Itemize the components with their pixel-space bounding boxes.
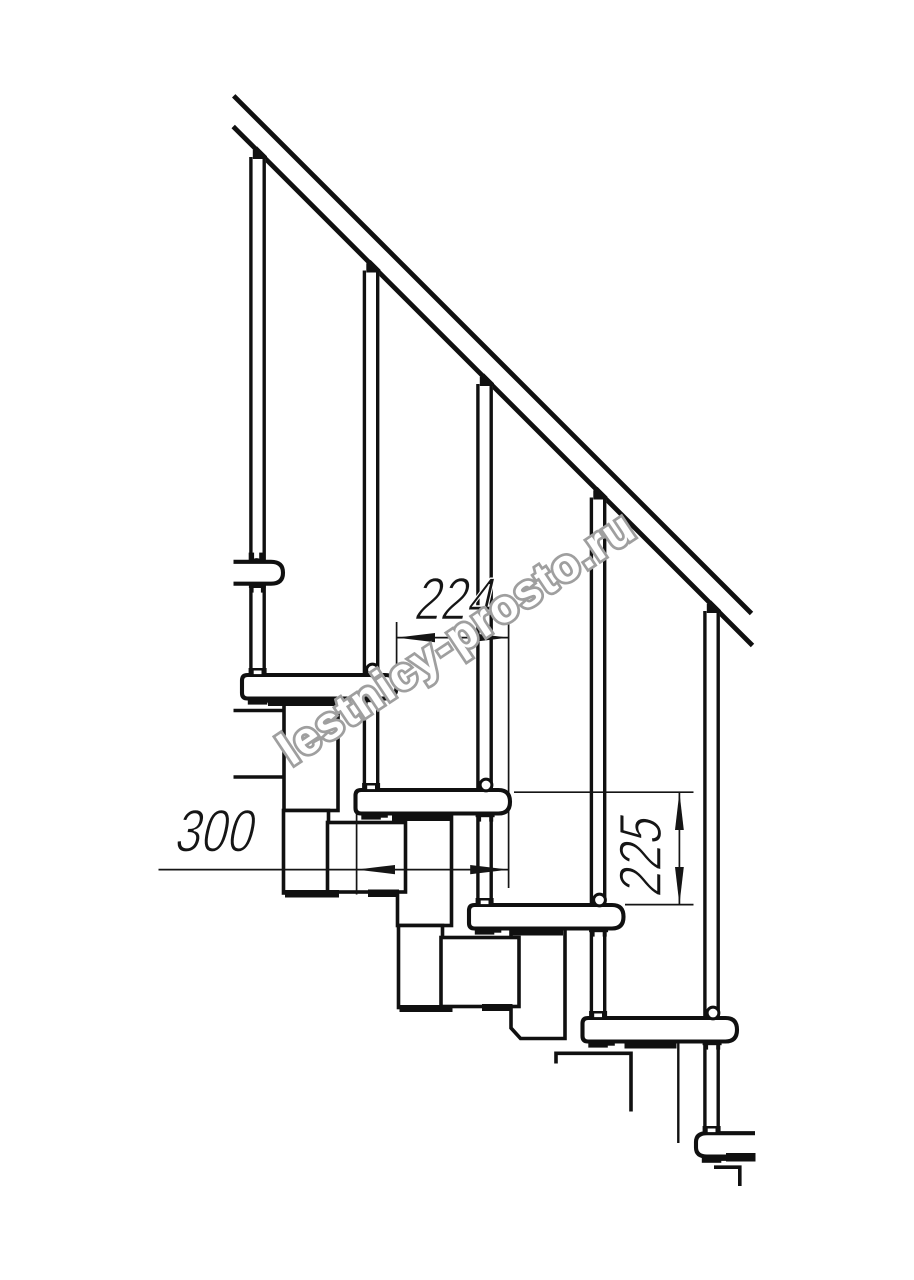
svg-text:225: 225	[606, 807, 674, 901]
svg-text:300: 300	[170, 797, 264, 865]
